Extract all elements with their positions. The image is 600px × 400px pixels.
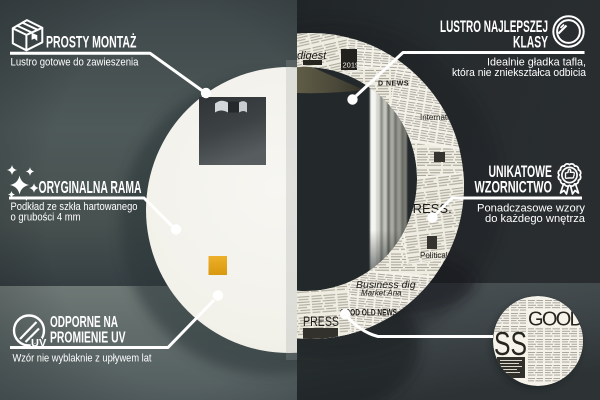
svg-text:Lustro gotowe do zawieszenia: Lustro gotowe do zawieszenia [11, 57, 139, 69]
svg-text:PRESS: PRESS [303, 313, 339, 329]
svg-text:PROSTY MONTAŻ: PROSTY MONTAŻ [46, 34, 137, 52]
svg-text:PROMIENIE UV: PROMIENIE UV [50, 330, 126, 347]
svg-text:D NEWS: D NEWS [378, 81, 409, 88]
svg-text:Wzór nie wyblaknie z upływem l: Wzór nie wyblaknie z upływem lat [13, 353, 152, 365]
svg-text:Market Ana: Market Ana [361, 289, 402, 298]
svg-text:ORYGINALNA RAMA: ORYGINALNA RAMA [39, 177, 142, 197]
svg-text:o grubości 4 mm: o grubości 4 mm [11, 212, 81, 224]
svg-text:SS: SS [494, 325, 527, 362]
svg-text:WZORNICTWO: WZORNICTWO [475, 179, 553, 197]
svg-text:ODPORNE NA: ODPORNE NA [50, 314, 118, 331]
svg-text:2019: 2019 [343, 61, 360, 70]
svg-text:która nie zniekształca odbicia: która nie zniekształca odbicia [452, 67, 586, 79]
svg-text:do każdego wnętrza: do każdego wnętrza [485, 213, 585, 225]
svg-text:KLASY: KLASY [513, 34, 548, 52]
